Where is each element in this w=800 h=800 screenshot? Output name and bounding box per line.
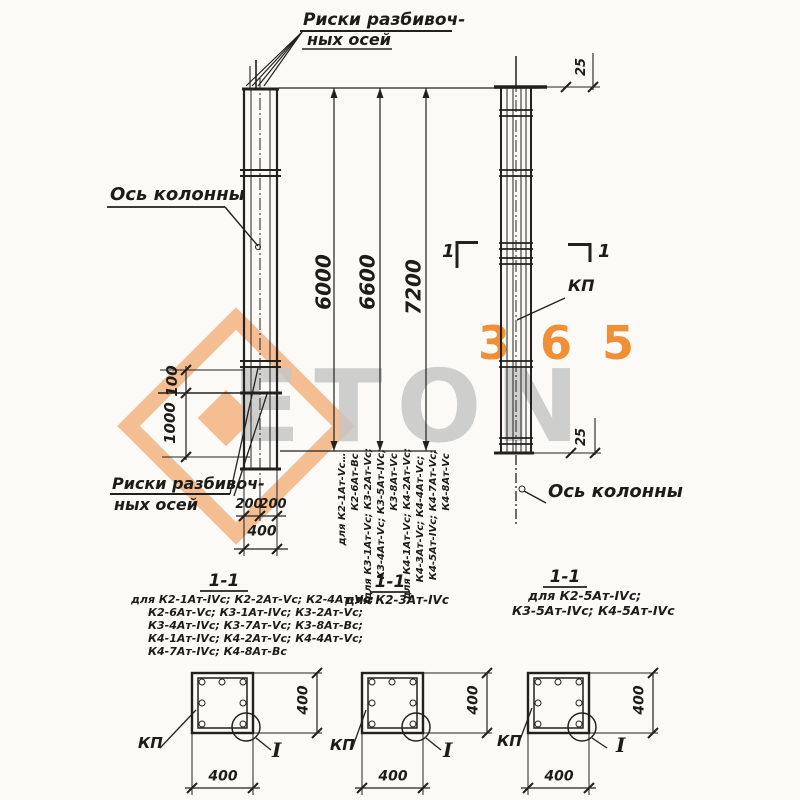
note-7200-line2: К4-3Ат-Vс; К4-4Ат-Vс; (416, 456, 427, 583)
dim-25-top: 25 (575, 58, 589, 76)
column-elevation-lines (240, 60, 282, 480)
section-3-dim-h: 400 (633, 685, 648, 714)
note-6600-line3: К3-8Ат-Vс (390, 453, 401, 511)
dim-400-bottom: 400 (247, 525, 276, 540)
dim-200-right: 200 (259, 498, 286, 512)
section-1-detail-mark: I (272, 740, 281, 761)
section-3-note-2: К3-5Ат-IVс; К4-5Ат-IVс (512, 604, 675, 617)
section-1-note-2: К2-6Ат-Vс; К3-1Ат-IVс; К3-2Ат-Vс; (148, 607, 363, 619)
section-1-note-5: К4-7Ат-IVс; К4-8Ат-Вс (148, 646, 287, 658)
section-2-dim-h: 400 (467, 685, 482, 714)
bottom-note-line1: Риски разбивоч- (112, 476, 265, 493)
section-2-kp: КП (330, 738, 355, 754)
section-1-kp: КП (138, 736, 163, 752)
section-1-dim-h: 400 (297, 685, 312, 714)
technical-drawing-sheet: ETON 365 (0, 0, 800, 800)
dim-6600: 6600 (358, 254, 379, 310)
dim-100: 100 (165, 365, 181, 396)
axis-label-left-leader (107, 207, 261, 250)
note-7200-line3: К4-5Ат-IVс; К4-7Ат-Vс; (429, 450, 440, 580)
section-2-dim-w: 400 (378, 770, 407, 785)
axis-label-right-leader (519, 486, 546, 503)
top-note-line2: ных осей (307, 32, 391, 49)
note-6600-line1: для К3-1Ат-Vс; К3-2Ат-Vс; (364, 448, 375, 600)
drawing-linework (0, 0, 800, 800)
section-3-kp: КП (497, 734, 522, 750)
axis-label-right: Ось колонны (548, 483, 683, 502)
section-3-detail-mark: I (616, 735, 625, 756)
section-2-note-1: для К2-3Ат-IVс (345, 594, 449, 607)
dim-1000: 1000 (163, 402, 179, 444)
section-2-title: 1-1 (375, 574, 406, 592)
section-3-dim-w: 400 (544, 770, 573, 785)
section-digit-left: 1 (442, 243, 455, 262)
note-6600-line2: К3-4Ат-Vс; К3-5Ат-IVс; (377, 449, 388, 579)
side-25-dimensions (561, 53, 600, 458)
note-6000-line2: К2-6Ат-Вс (351, 453, 362, 510)
dim-6000: 6000 (314, 254, 335, 310)
section-3-note-1: для К2-5Ат-IVс; (528, 589, 641, 602)
section-1-note-4: К4-1Ат-IVс; К4-2Ат-Vс; К4-4Ат-Vс; (148, 633, 363, 645)
section-2-detail-mark: I (443, 740, 452, 761)
section-3-title: 1-1 (550, 569, 581, 587)
kp-label-side: КП (568, 278, 594, 295)
axis-label-left: Ось колонны (110, 186, 245, 205)
section-1-note-3: К3-4Ат-IVс; К3-7Ат-Vс; К3-8Ат-Вс; (148, 620, 363, 632)
note-6000-line1: для К2-1Ат-Vс… (338, 453, 349, 546)
note-7200-line4: К4-8Ат-Vс (442, 453, 453, 511)
section-1-dim-w: 400 (208, 770, 237, 785)
dim-25-bottom: 25 (575, 428, 589, 446)
top-note-line1: Риски разбивоч- (303, 12, 465, 30)
kp-leader-side (517, 298, 565, 320)
section-digit-right: 1 (598, 243, 611, 262)
section-1-title: 1-1 (209, 573, 240, 591)
section-1-note-1: для К2-1Ат-IVс; К2-2Ат-Vс; К2-4Ат-Vс; (131, 594, 374, 606)
bottom-note-line2: ных осей (114, 497, 198, 514)
dim-7200: 7200 (404, 259, 425, 315)
